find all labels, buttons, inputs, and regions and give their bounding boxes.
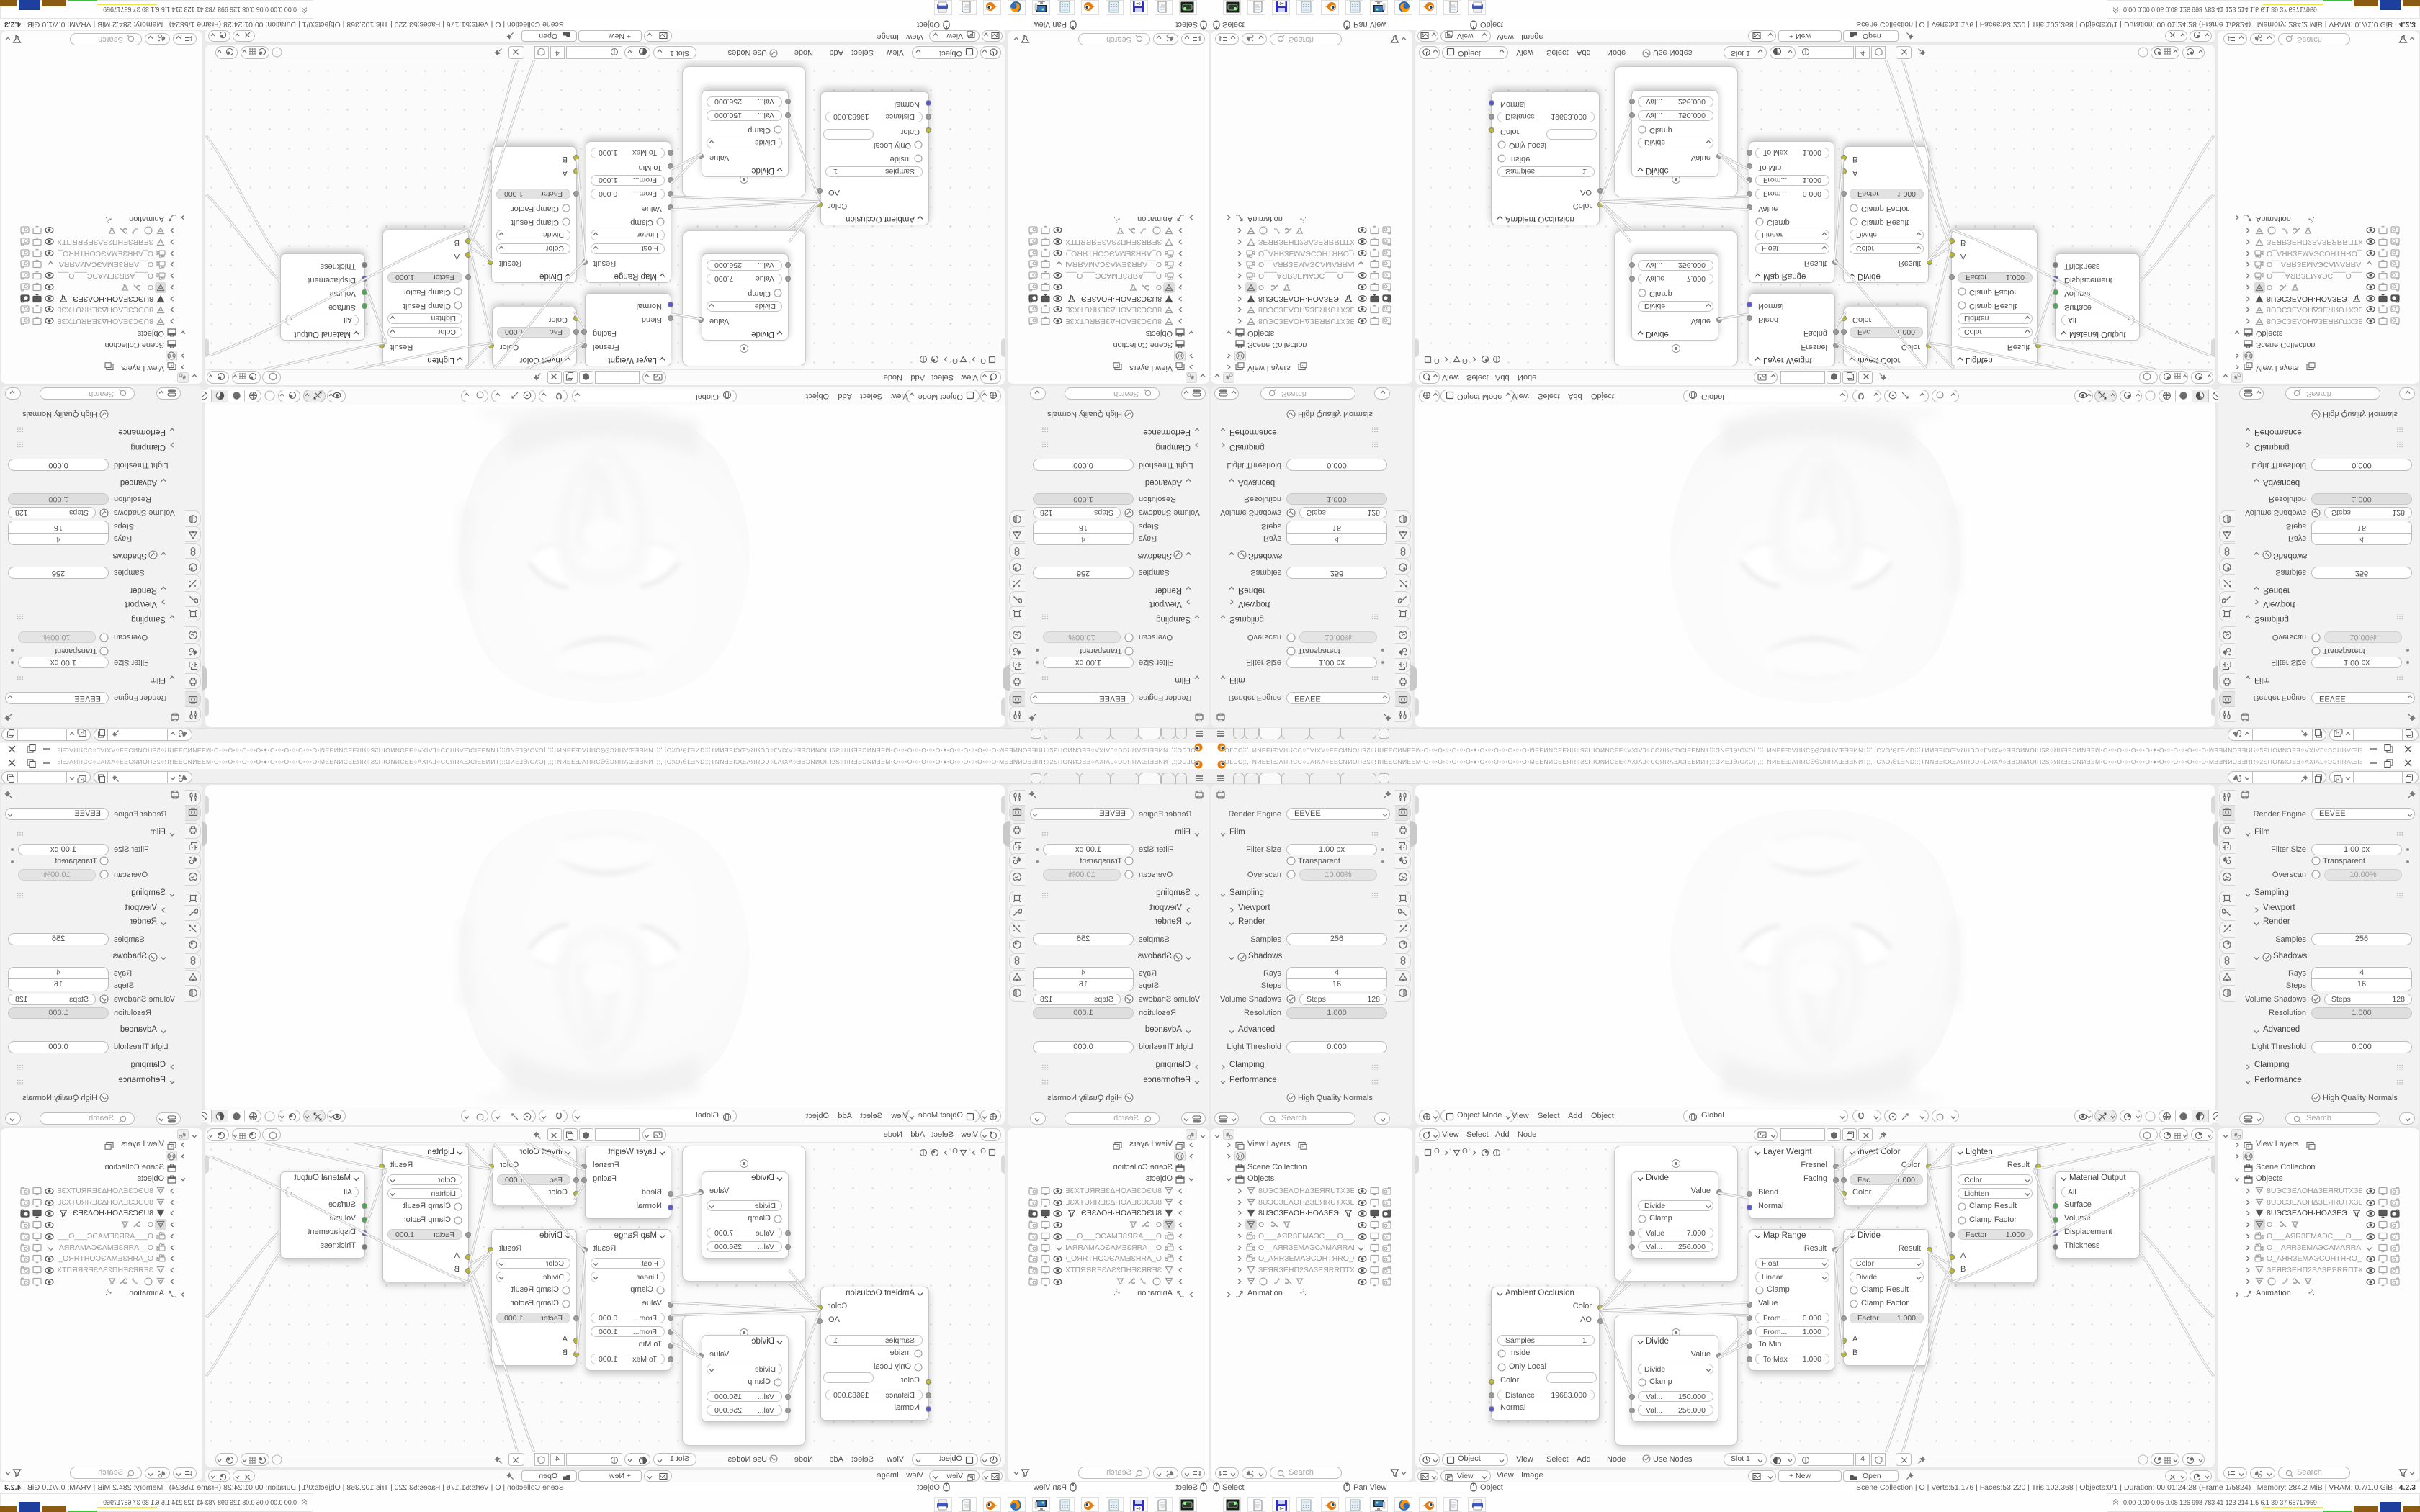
svg-text:64: 64 bbox=[1136, 1, 1140, 6]
svg-text:64: 64 bbox=[1279, 1507, 1283, 1511]
svg-text:64: 64 bbox=[1136, 1507, 1140, 1511]
svg-text:64: 64 bbox=[1279, 1, 1283, 6]
